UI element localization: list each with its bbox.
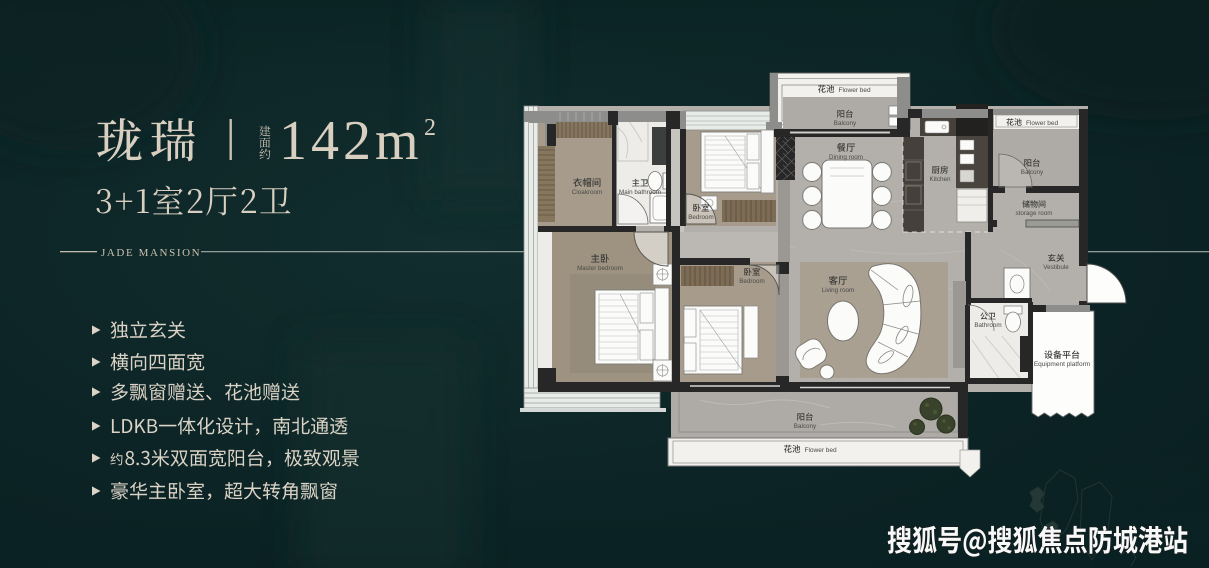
svg-text:Cloakroom: Cloakroom [572, 189, 602, 196]
svg-text:JADE MANSION: JADE MANSION [101, 247, 201, 259]
svg-text:Flower bed: Flower bed [1026, 120, 1059, 127]
svg-text:Bedroom: Bedroom [739, 278, 765, 285]
svg-text:Bedroom: Bedroom [688, 214, 714, 221]
svg-text:Flower bed: Flower bed [839, 87, 872, 94]
svg-text:2: 2 [424, 115, 436, 141]
svg-text:Kitchen: Kitchen [929, 176, 951, 183]
svg-text:Vestibule: Vestibule [1043, 264, 1069, 271]
svg-text:Dining room: Dining room [829, 154, 863, 161]
svg-text:Balcony: Balcony [794, 423, 817, 430]
svg-text:storage room: storage room [1015, 210, 1052, 217]
svg-text:Equipment platform: Equipment platform [1034, 361, 1090, 368]
svg-text:142m: 142m [279, 110, 423, 172]
svg-text:Flower bed: Flower bed [805, 447, 838, 454]
svg-text:Master bedroom: Master bedroom [577, 265, 623, 272]
svg-text:Bathroom: Bathroom [974, 322, 1001, 329]
svg-text:Main bathroom: Main bathroom [619, 189, 661, 196]
svg-text:Balcony: Balcony [834, 120, 857, 127]
svg-text:Balcony: Balcony [1021, 169, 1044, 176]
svg-text:Living room: Living room [822, 287, 855, 294]
